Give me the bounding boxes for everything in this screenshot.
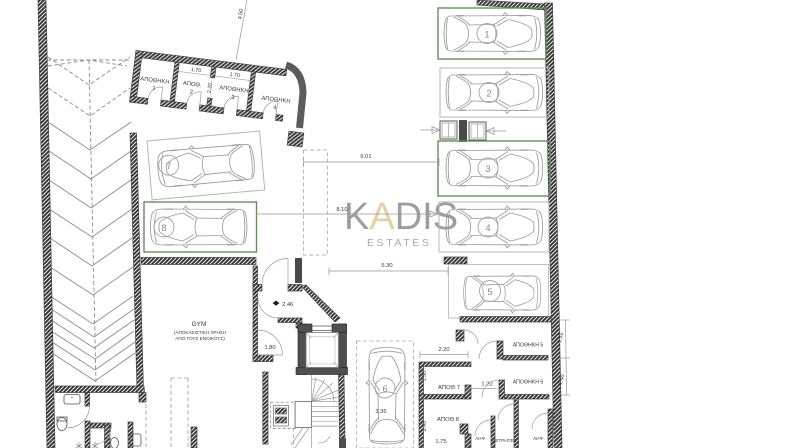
svg-text:1.80: 1.80 bbox=[264, 345, 275, 351]
svg-text:1: 1 bbox=[484, 30, 489, 41]
svg-text:2.40: 2.40 bbox=[422, 421, 428, 431]
svg-text:ΜΕΤΡΗΤΕΣ: ΜΕΤΡΗΤΕΣ bbox=[492, 438, 517, 443]
svg-text:1.75: 1.75 bbox=[435, 439, 446, 445]
svg-text:ΛΗΨ.: ΛΗΨ. bbox=[475, 436, 487, 441]
svg-text:5: 5 bbox=[487, 287, 492, 298]
svg-text:2.46: 2.46 bbox=[282, 302, 293, 308]
svg-text:ΛΗΨ.: ΛΗΨ. bbox=[533, 436, 545, 441]
svg-text:GYM: GYM bbox=[192, 321, 207, 328]
svg-text:8.10: 8.10 bbox=[336, 207, 347, 213]
svg-text:ESTATES: ESTATES bbox=[367, 237, 432, 249]
svg-text:2: 2 bbox=[486, 89, 491, 100]
svg-text:6.01: 6.01 bbox=[360, 154, 371, 160]
svg-text:7: 7 bbox=[166, 161, 172, 172]
svg-text:3.36: 3.36 bbox=[375, 409, 386, 415]
svg-text:ΑΠΟΘΗΚΗ 6: ΑΠΟΘΗΚΗ 6 bbox=[513, 380, 544, 386]
svg-text:ΑΠΟΘ.7: ΑΠΟΘ.7 bbox=[438, 385, 460, 391]
svg-text:6: 6 bbox=[382, 384, 387, 395]
svg-text:8: 8 bbox=[161, 223, 166, 234]
svg-text:ΑΠΟ ΤΟΥΣ ΕΝΟΙΚΟΥΣ): ΑΠΟ ΤΟΥΣ ΕΝΟΙΚΟΥΣ) bbox=[175, 336, 225, 341]
svg-text:ΑΠΟΘ.8: ΑΠΟΘ.8 bbox=[437, 417, 459, 423]
svg-text:3: 3 bbox=[485, 164, 490, 175]
svg-text:(ΑΠΟΚΛΕΙΣΤΙΚΗ ΧΡΗΣΗ: (ΑΠΟΚΛΕΙΣΤΙΚΗ ΧΡΗΣΗ bbox=[174, 330, 226, 335]
svg-text:1.50: 1.50 bbox=[422, 371, 428, 381]
svg-text:4: 4 bbox=[485, 223, 490, 234]
svg-text:2.20: 2.20 bbox=[438, 347, 449, 353]
svg-text:5.30: 5.30 bbox=[381, 263, 392, 269]
svg-text:ΑΠΟΘΗΚΗ 5: ΑΠΟΘΗΚΗ 5 bbox=[513, 343, 544, 349]
